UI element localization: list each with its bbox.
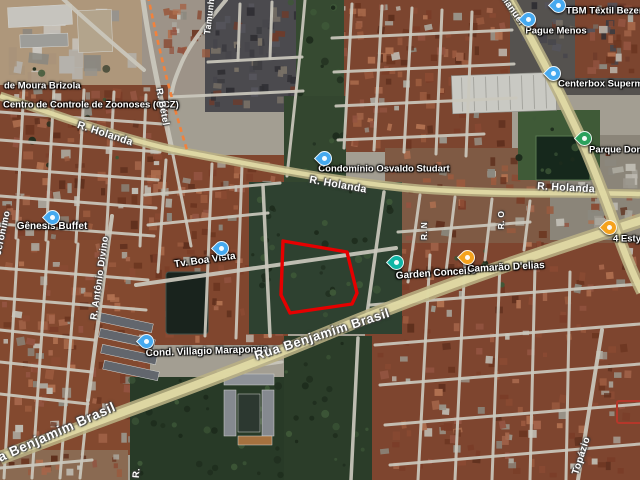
map-label-r-cut: R.	[132, 468, 142, 479]
pin-icon	[605, 224, 612, 231]
pin-icon	[580, 135, 587, 142]
map-label-r-holanda-2: R. Holanda	[309, 175, 368, 195]
map-labels-overlay: de Moura BrizolaCentro de Controle de Zo…	[0, 0, 640, 480]
pin-icon	[320, 155, 327, 162]
map-label-ccz[interactable]: Centro de Controle de Zoonoses (CCZ)	[3, 100, 179, 110]
pin-icon	[142, 338, 149, 345]
map-label-quatro-esty[interactable]: 4 Esty	[613, 234, 640, 244]
pin-icon	[463, 254, 470, 261]
map-label-rua-benjamim-2: Rua Benjamim Brasil	[253, 306, 392, 362]
map-label-r-antonio-divino: R. Antônio Divino	[89, 236, 110, 321]
map-label-moura-brizola[interactable]: de Moura Brizola	[4, 81, 81, 91]
pin-icon	[48, 214, 55, 221]
map-label-garden-conceito[interactable]: Garden Conceito	[395, 266, 476, 282]
map-label-topazio: Topázio	[571, 436, 593, 476]
map-label-rua-benjamim-1: Rua Benjamim Brasil	[0, 400, 118, 472]
pin-icon	[392, 259, 399, 266]
map-label-jeronimo: Jerônimo	[0, 210, 12, 256]
map-label-r-n: R. N	[420, 222, 429, 240]
map-label-parque-dom[interactable]: Parque Dom A	[589, 145, 640, 155]
map-label-camarao-delias[interactable]: Camarão D'elias	[467, 261, 545, 275]
map-label-condominio-osvaldo[interactable]: Condomínio Osvaldo Studart	[318, 164, 449, 174]
map-label-r-holanda-3: R. Holanda	[537, 181, 595, 195]
pin-icon	[554, 2, 561, 9]
map-label-tamunhe: Tamunhé	[203, 0, 217, 35]
map-label-tv-boa-vista[interactable]: Tv. Boa Vista	[174, 252, 237, 271]
map-label-pague-menos[interactable]: Pague Menos	[525, 26, 586, 36]
map-label-r-holanda-1: R. Holanda	[76, 120, 134, 148]
map-label-r-betel: R. Bétel	[154, 88, 171, 127]
map-label-cond-villagio[interactable]: Cond. Villagio Maraponga	[146, 345, 269, 359]
map-label-centerbox[interactable]: Centerbox Supermercado	[558, 79, 640, 89]
map-label-tbm-textil[interactable]: TBM Têxtil Bezerra de	[566, 6, 640, 16]
pin-icon	[524, 16, 531, 23]
map-label-r-o: R. O	[497, 211, 506, 230]
pin-icon	[549, 70, 556, 77]
satellite-map-canvas[interactable]: de Moura BrizolaCentro de Controle de Zo…	[0, 0, 640, 480]
pin-icon	[217, 245, 224, 252]
